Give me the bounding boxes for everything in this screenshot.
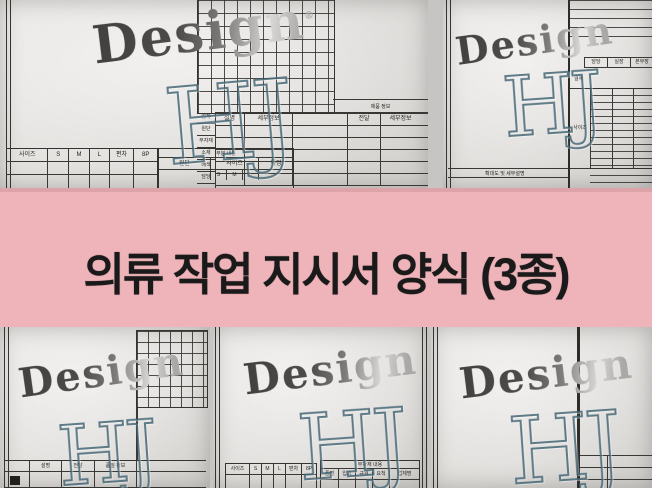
form-border-line [446,0,451,188]
size-header: 편차 [110,149,135,161]
row-label: 업체 [197,112,215,123]
row-label: 원단 [197,124,215,135]
info-table: 설명 전달 품질 정보 [4,460,206,488]
detail-cell: 원단 [159,158,211,169]
row-label: 부자재 [197,136,215,147]
approval-cell: 담당 [585,58,608,67]
trim-col-header: 입고 [339,469,356,479]
worksheet-form-top-right: 담당 실장 본부장 결재 사이즈 확대도 및 세부설명 Design HJ [443,0,652,188]
hj-watermark-text: HJ [505,391,621,488]
table-header-cell: 설명 [30,461,62,471]
worksheet-form-top-left: 제품 정보 업체 원단 부자재 소재 배색 담당 설명 세부정보 전달 세부정보… [0,0,428,188]
form-border-line [422,327,427,488]
trim-col-header: 업체명 [390,469,419,479]
form-border-line [215,327,220,488]
info-col-header: 전달 [348,113,381,125]
spec-panel: 담당 실장 본부장 결재 사이즈 [568,0,652,188]
trim-col-header: 품명 [321,469,339,479]
detail-size: S [211,170,227,180]
design-watermark-text: Design [457,339,636,409]
detail-section-title: 부분 내용 [216,150,236,157]
worksheet-form-bottom-middle: 사이즈 S M L 편차 8P 부자재 내용 품명 입고 규격 요척 업체명 D… [213,327,428,488]
worksheet-form-bottom-left: 설명 전달 품질 정보 Design HJ [0,327,210,488]
info-col-header: 세부정보 [245,113,293,125]
footer-note: 확대도 및 세부설명 [485,170,525,177]
info-table-title: 제품 정보 [371,103,391,110]
design-watermark-text: Design [241,335,420,405]
pattern-grid [197,0,335,114]
trim-col-header: 요척 [373,469,390,479]
size-header: 사이즈 [226,464,250,474]
trim-table-title: 부자재 내용 [358,461,382,468]
approval-cell: 본부장 [631,58,652,67]
detail-size: L [243,170,259,180]
panel-left-label: 사이즈 [573,124,587,131]
panel-divider-line [577,327,580,488]
size-table: 사이즈 S M L 편차 8P [225,463,317,488]
detail-cell: 특징 [259,158,293,169]
size-header: M [262,464,274,474]
table-header-cell: 전달 [62,461,95,471]
approval-left-label: 결재 [574,75,583,82]
size-header: 편차 [286,464,302,474]
logo-swatch [10,476,20,485]
info-col-header [293,113,348,125]
approval-cell: 실장 [608,58,631,67]
detail-cell: 사이즈 [211,158,259,169]
size-table: 사이즈 S M L 편차 8P 부분 내용 원단 사이즈 특징 [6,148,294,188]
info-col-header: 설명 [215,113,245,125]
worksheet-form-bottom-right: Design HJ [431,327,652,488]
banner-title: 의류 작업 지시서 양식 (3종) [83,238,568,303]
detail-size: M [227,170,243,180]
size-header: M [69,149,90,161]
size-header: L [90,149,110,161]
size-header: 사이즈 [7,149,48,161]
info-col-header: 세부정보 [381,113,420,125]
size-header: S [48,149,69,161]
title-banner: 의류 작업 지시서 양식 (3종) [0,188,652,327]
form-border-line [433,327,438,488]
pattern-grid [136,330,208,408]
size-header: 8P [134,149,157,161]
size-header: S [250,464,262,474]
trim-col-header: 규격 [356,469,373,479]
trim-table: 부자재 내용 품명 입고 규격 요척 업체명 [320,460,420,488]
table-title-cell: 품질 정보 [95,461,137,471]
size-header: L [274,464,286,474]
size-header: 8P [302,464,316,474]
